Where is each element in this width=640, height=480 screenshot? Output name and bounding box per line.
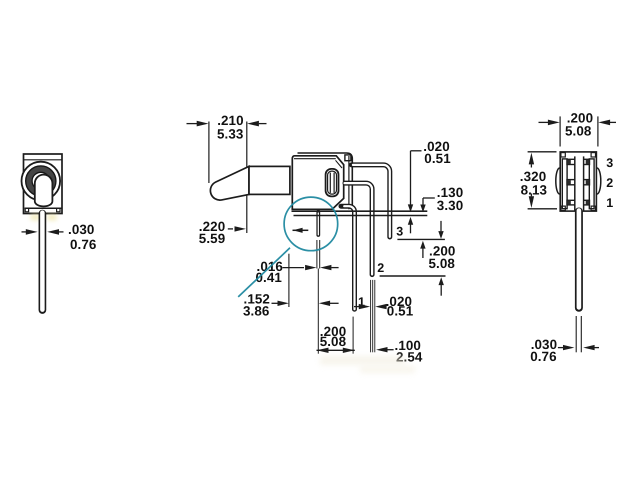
svg-text:5.59: 5.59 bbox=[199, 231, 225, 246]
svg-text:0.76: 0.76 bbox=[530, 349, 556, 364]
svg-text:0.76: 0.76 bbox=[70, 237, 96, 252]
svg-text:5.33: 5.33 bbox=[217, 126, 243, 141]
svg-text:3.30: 3.30 bbox=[437, 198, 463, 213]
svg-text:0.51: 0.51 bbox=[387, 304, 414, 319]
svg-text:3: 3 bbox=[606, 156, 613, 170]
svg-text:2: 2 bbox=[606, 176, 613, 190]
svg-text:2: 2 bbox=[377, 261, 384, 275]
svg-text:8.13: 8.13 bbox=[521, 183, 547, 198]
svg-text:5.08: 5.08 bbox=[565, 124, 592, 139]
svg-text:3.86: 3.86 bbox=[243, 304, 269, 319]
svg-text:.030: .030 bbox=[68, 222, 94, 237]
svg-text:1: 1 bbox=[606, 196, 613, 210]
svg-text:0.51: 0.51 bbox=[424, 151, 451, 166]
svg-text:3: 3 bbox=[396, 225, 403, 239]
svg-text:5.08: 5.08 bbox=[429, 256, 456, 271]
svg-text:5.08: 5.08 bbox=[320, 334, 347, 349]
